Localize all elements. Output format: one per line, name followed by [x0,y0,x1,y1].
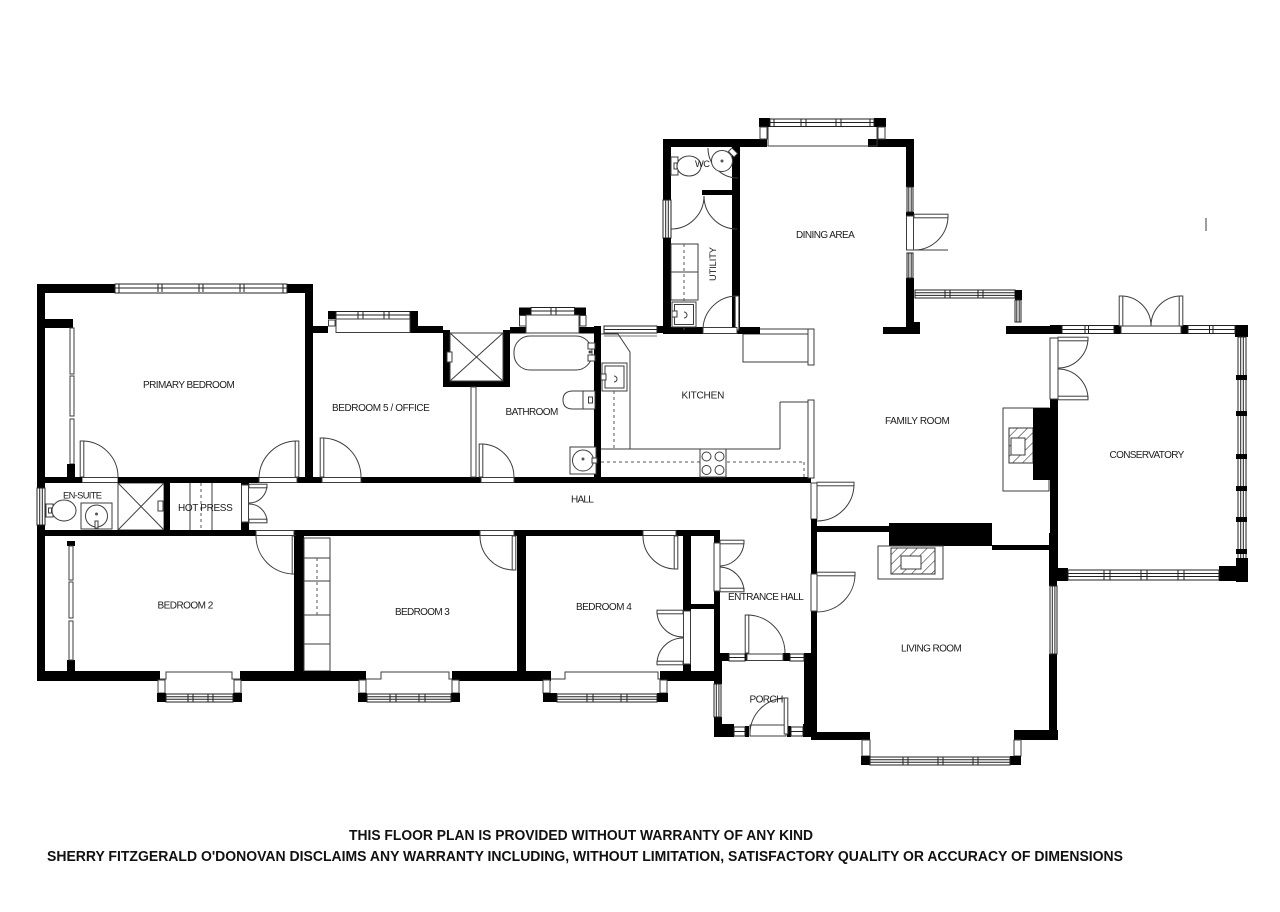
svg-text:BATHROOM: BATHROOM [506,407,559,418]
svg-text:FAMILY ROOM: FAMILY ROOM [885,416,950,427]
svg-text:BEDROOM 3: BEDROOM 3 [395,607,450,618]
svg-text:BEDROOM 2: BEDROOM 2 [158,601,214,612]
svg-text:SHERRY FITZGERALD O'DONOVAN DI: SHERRY FITZGERALD O'DONOVAN DISCLAIMS AN… [47,849,1123,865]
svg-text:HOT PRESS: HOT PRESS [178,503,233,514]
svg-text:BEDROOM 5 / OFFICE: BEDROOM 5 / OFFICE [332,403,430,414]
svg-text:EN-SUITE: EN-SUITE [63,491,102,501]
svg-text:PRIMARY BEDROOM: PRIMARY BEDROOM [143,380,235,391]
svg-text:THIS FLOOR PLAN IS PROVIDED WI: THIS FLOOR PLAN IS PROVIDED WITHOUT WARR… [349,828,813,844]
svg-text:DINING AREA: DINING AREA [796,230,855,241]
svg-text:ENTRANCE HALL: ENTRANCE HALL [728,592,804,603]
svg-text:LIVING ROOM: LIVING ROOM [901,644,962,655]
svg-text:CONSERVATORY: CONSERVATORY [1110,450,1185,461]
svg-text:BEDROOM 4: BEDROOM 4 [576,602,632,613]
svg-text:WC: WC [695,159,710,169]
svg-text:HALL: HALL [571,495,594,506]
svg-text:UTILITY: UTILITY [708,247,718,281]
svg-text:KITCHEN: KITCHEN [682,391,725,402]
svg-text:PORCH: PORCH [750,695,784,706]
